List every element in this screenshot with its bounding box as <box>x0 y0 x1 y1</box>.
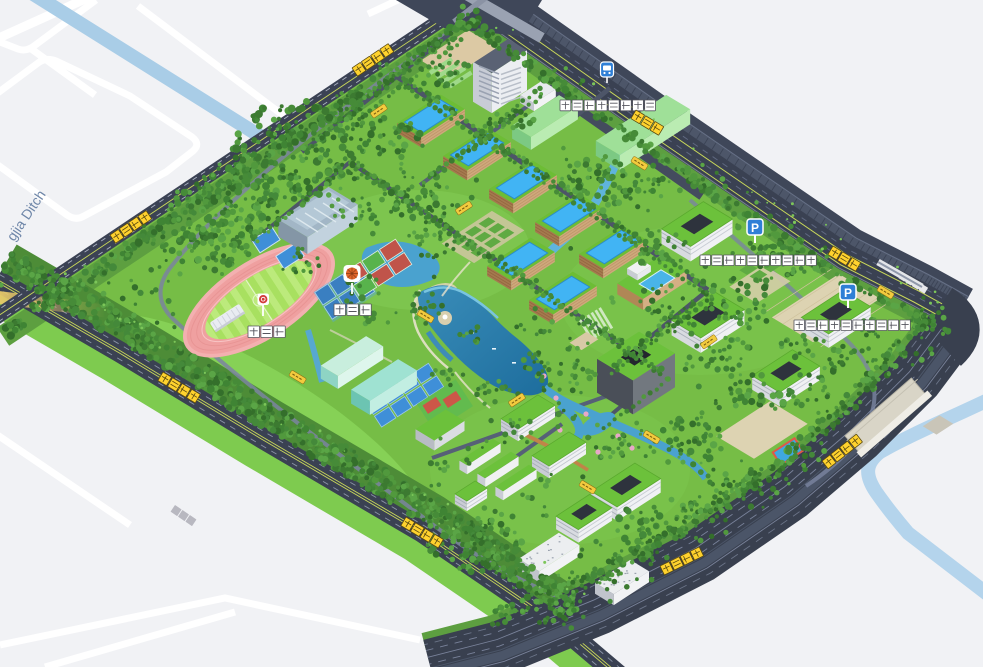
svg-text:P: P <box>751 221 759 235</box>
svg-text:P: P <box>844 286 852 300</box>
